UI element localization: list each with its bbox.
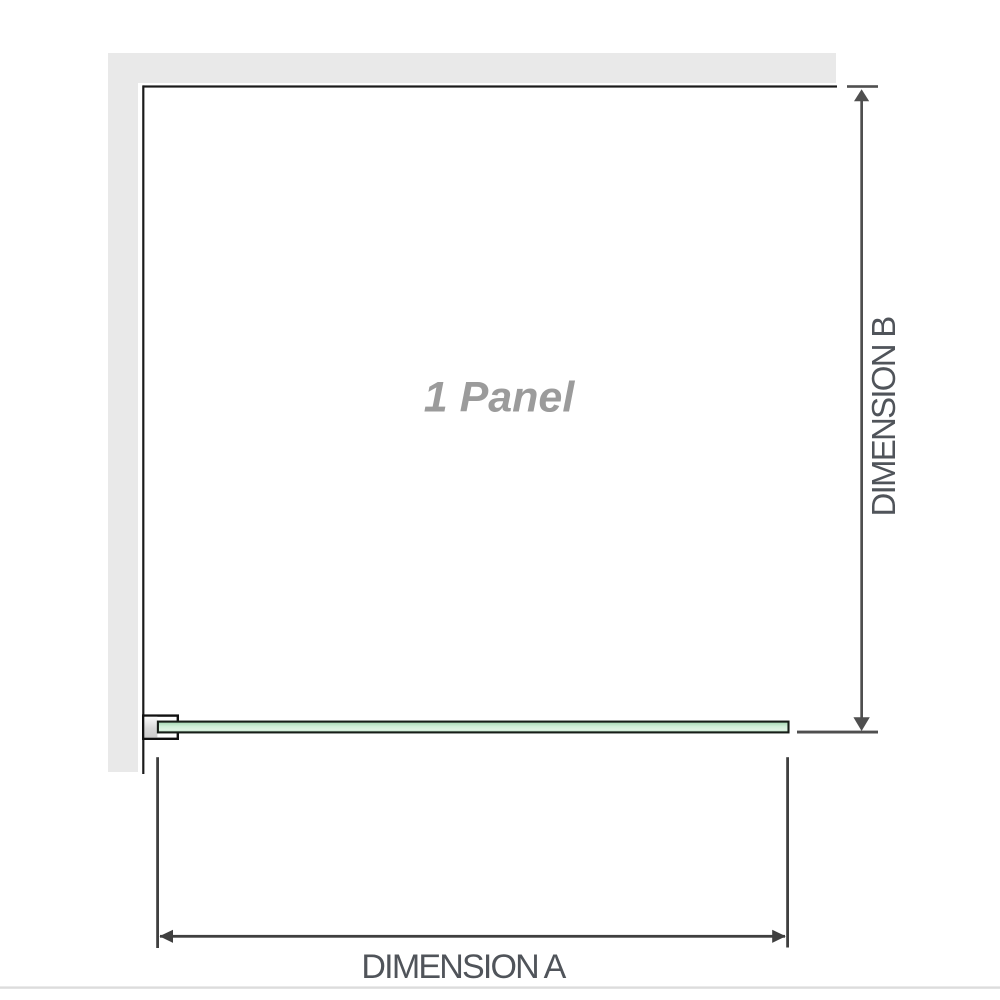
svg-text:DIMENSION B: DIMENSION B	[865, 317, 902, 517]
svg-text:DIMENSION A: DIMENSION A	[361, 948, 566, 986]
svg-text:1 Panel: 1 Panel	[424, 374, 576, 422]
